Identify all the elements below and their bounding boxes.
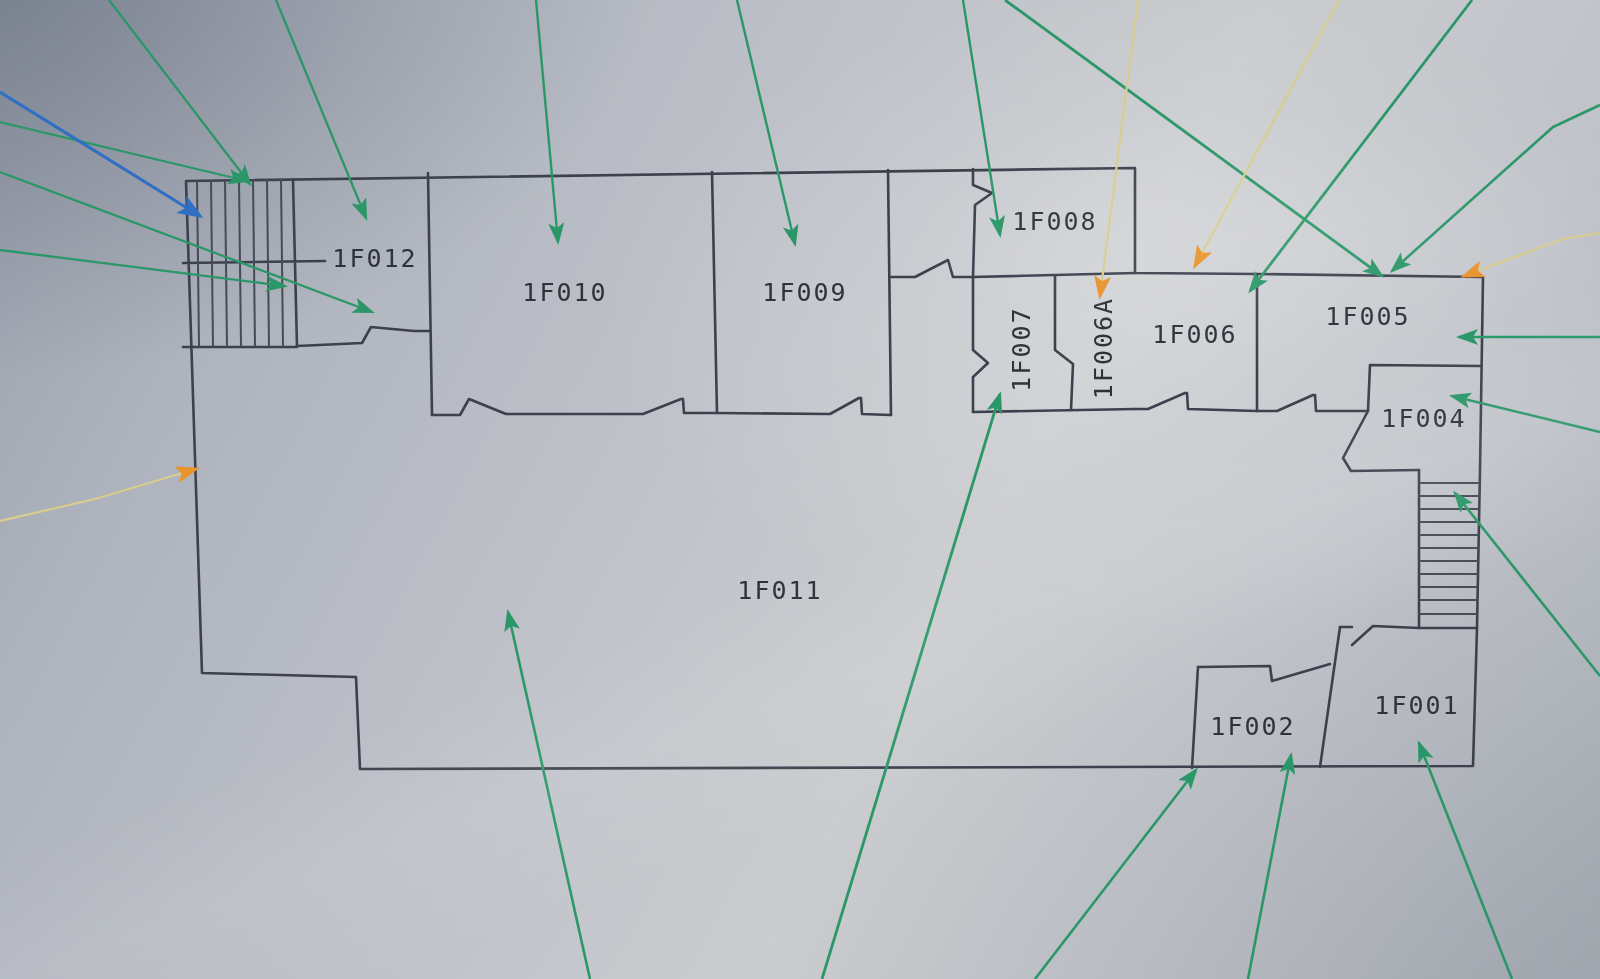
room-label-1f006a: 1F006A bbox=[1089, 297, 1118, 399]
arrow-room-1f002-corner bbox=[1035, 770, 1196, 979]
arrow-room-1f011 bbox=[508, 612, 590, 979]
floor-plan: 1F001 1F002 1F004 1F005 1F006 1F006A 1F0… bbox=[0, 0, 1600, 979]
wall-1f009-left bbox=[712, 172, 717, 413]
room-label-1f011: 1F011 bbox=[737, 576, 822, 605]
wall-1f012-door bbox=[297, 327, 430, 346]
stairs-right-hatch bbox=[1419, 483, 1479, 614]
room-label-1f008: 1F008 bbox=[1012, 207, 1097, 236]
arrow-room-1f005-corner bbox=[1464, 233, 1600, 276]
arrow-room-1f006-top bbox=[1250, 0, 1472, 291]
wall-1f007-bottom bbox=[973, 409, 1135, 412]
arrow-room-1f005-top-b bbox=[1392, 105, 1600, 271]
wall-1f010-1f009-bottom bbox=[432, 398, 891, 415]
wall-1f005-bottom bbox=[1257, 395, 1368, 411]
arrow-room-1f001 bbox=[1419, 743, 1512, 979]
wall-1f006-bottom bbox=[1135, 393, 1257, 411]
arrow-room-1f009 bbox=[737, 0, 795, 244]
wall-1f010-left bbox=[428, 173, 432, 415]
room-label-1f005: 1F005 bbox=[1325, 302, 1410, 331]
room-labels: 1F001 1F002 1F004 1F005 1F006 1F006A 1F0… bbox=[332, 207, 1466, 741]
wall-1f002-left bbox=[1192, 667, 1198, 768]
room-label-1f002: 1F002 bbox=[1210, 712, 1295, 741]
wall-1f008-left bbox=[973, 169, 992, 277]
room-label-1f009: 1F009 bbox=[762, 278, 847, 307]
wall-1f007-1f006a-divider bbox=[1055, 276, 1073, 410]
arrow-left-wall bbox=[0, 469, 196, 521]
wall-1f002-top bbox=[1198, 664, 1330, 681]
wall-1f009-right bbox=[888, 170, 891, 415]
room-label-1f006: 1F006 bbox=[1152, 320, 1237, 349]
arrow-stairs-left-top bbox=[109, 0, 250, 184]
room-label-1f004: 1F004 bbox=[1381, 404, 1466, 433]
arrow-room-1f004 bbox=[1452, 396, 1600, 432]
room-label-1f001: 1F001 bbox=[1374, 691, 1459, 720]
arrow-stairs-left-mid bbox=[0, 250, 285, 286]
annotation-arrows bbox=[0, 0, 1600, 979]
room-label-1f007: 1F007 bbox=[1007, 306, 1036, 391]
arrow-room-1f007 bbox=[822, 394, 1000, 979]
room-label-1f010: 1F010 bbox=[522, 278, 607, 307]
wall-1f001-top bbox=[1340, 626, 1419, 645]
wall-1f001-left bbox=[1320, 627, 1340, 767]
arrow-room-1f002 bbox=[1248, 755, 1291, 979]
arrow-room-1f006-wall bbox=[1195, 0, 1339, 266]
arrow-room-1f010 bbox=[536, 0, 558, 242]
floor-plan-photo-page: { "plan": { "floor": "1F", "rooms": [ {"… bbox=[0, 0, 1600, 979]
arrow-room-1f006a bbox=[1100, 0, 1138, 296]
wall-1f007-left bbox=[973, 277, 988, 412]
arrow-stairs-left-blue bbox=[0, 92, 200, 216]
arrow-room-1f012-upper bbox=[276, 0, 366, 218]
room-label-1f012: 1F012 bbox=[332, 244, 417, 273]
wall-corridor-top bbox=[891, 260, 973, 277]
